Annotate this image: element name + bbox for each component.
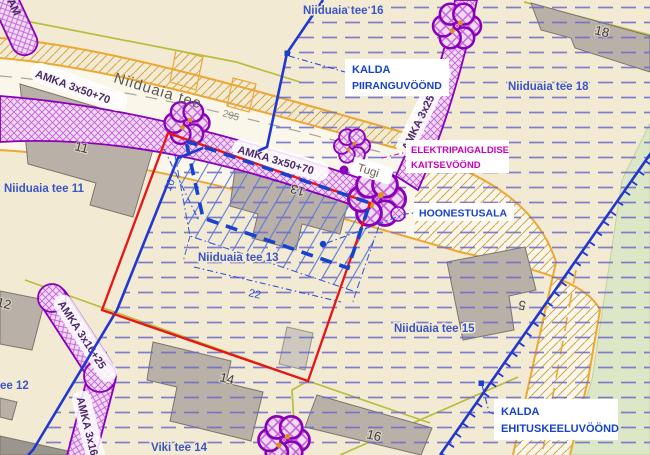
zone-label-ehituskeeluvoond-1: KALDA (501, 406, 540, 418)
zone-label-piiranguvoond-2: PIIRANGUVÖÖND (352, 79, 442, 92)
map-canvas[interactable]: AMKA 3x50+70 AMKA 3x50+70 AMKA 3x25+35 A… (0, 0, 650, 455)
zone-label-kaitsevoond-2: KAITSEVÖÖND (411, 160, 481, 171)
parcel-label-tee16: Niiduaia tee 16 (303, 5, 384, 17)
zone-label-piiranguvoond-1: KALDA (352, 64, 391, 76)
transformer-symbol (334, 129, 370, 162)
parcel-label-viki14: Viki tee 14 (151, 442, 208, 454)
boundary-node (479, 381, 485, 387)
transformer-symbol (259, 416, 310, 455)
support-pole-dot (340, 166, 349, 175)
hoonestusala-point (320, 241, 326, 247)
plan-drawing: AMKA 3x50+70 AMKA 3x50+70 AMKA 3x25+35 A… (0, 0, 650, 455)
boundary-node (285, 51, 291, 57)
parcel-label-tee11: Niiduaia tee 11 (4, 183, 85, 195)
parcel-label-tee12: ee 12 (0, 380, 29, 392)
zone-label-hoonestusala: HOONESTUSALA (419, 208, 508, 220)
transformer-symbol (433, 4, 481, 48)
zone-label-kaitsevoond-1: ELEKTRIPAIGALDISE (411, 145, 509, 156)
parcel-label-tee18: Niiduaia tee 18 (508, 81, 589, 93)
zone-label-ehituskeeluvoond-2: EHITUSKEELUVÖÖND (501, 422, 619, 435)
parcel-label-tee15: Niiduaia tee 15 (394, 323, 475, 335)
parcel-label-tee13: Niiduaia tee 13 (198, 252, 279, 264)
